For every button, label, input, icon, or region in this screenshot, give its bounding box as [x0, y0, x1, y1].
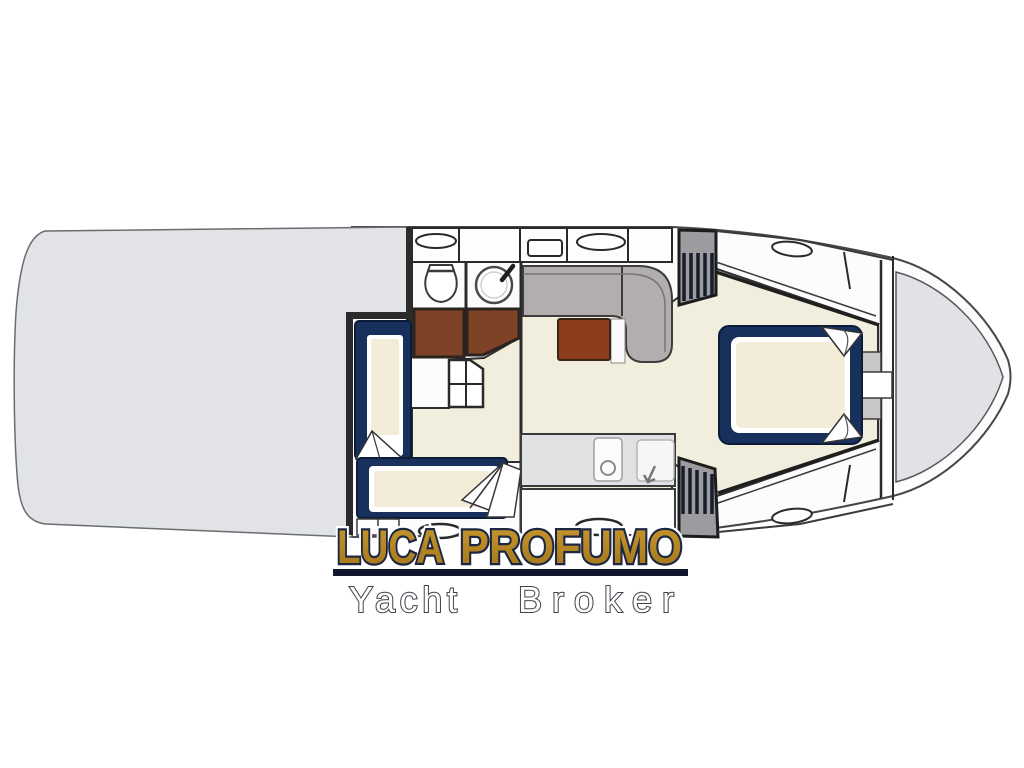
svg-text:PROFUMO: PROFUMO [460, 520, 682, 573]
svg-text:LUCA: LUCA [337, 520, 444, 573]
svg-text:Yacht: Yacht [349, 579, 457, 620]
